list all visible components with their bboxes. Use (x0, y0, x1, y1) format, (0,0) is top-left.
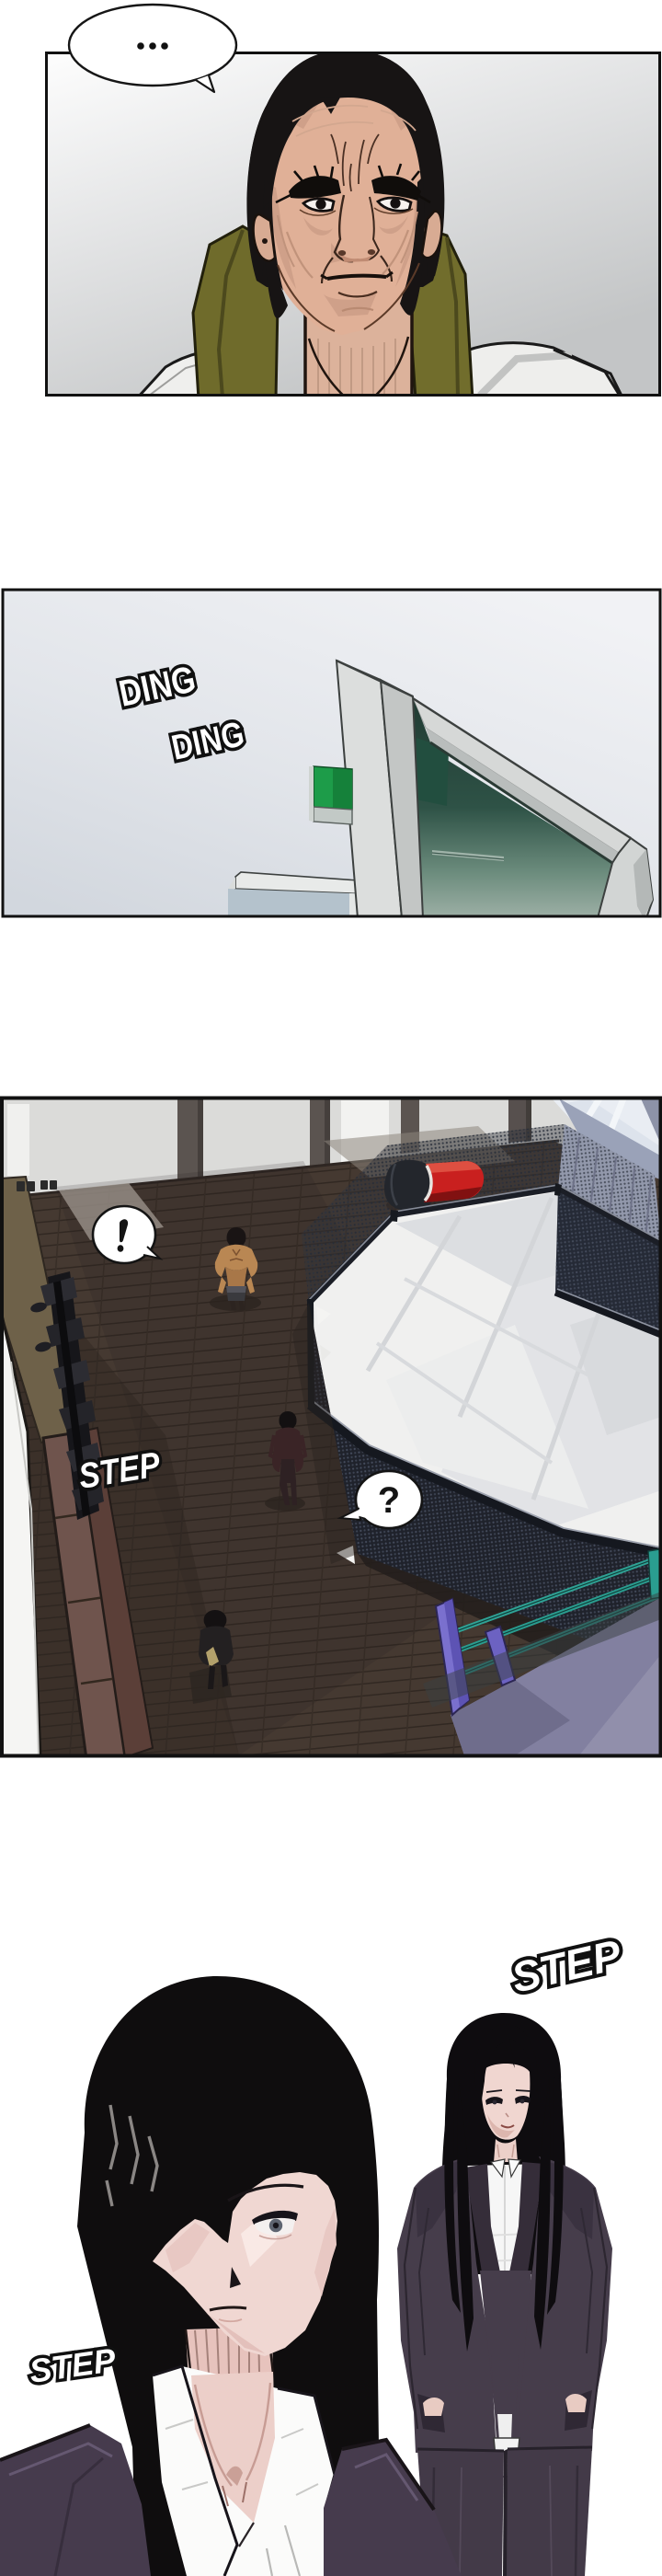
svg-text:?: ? (378, 1480, 400, 1521)
